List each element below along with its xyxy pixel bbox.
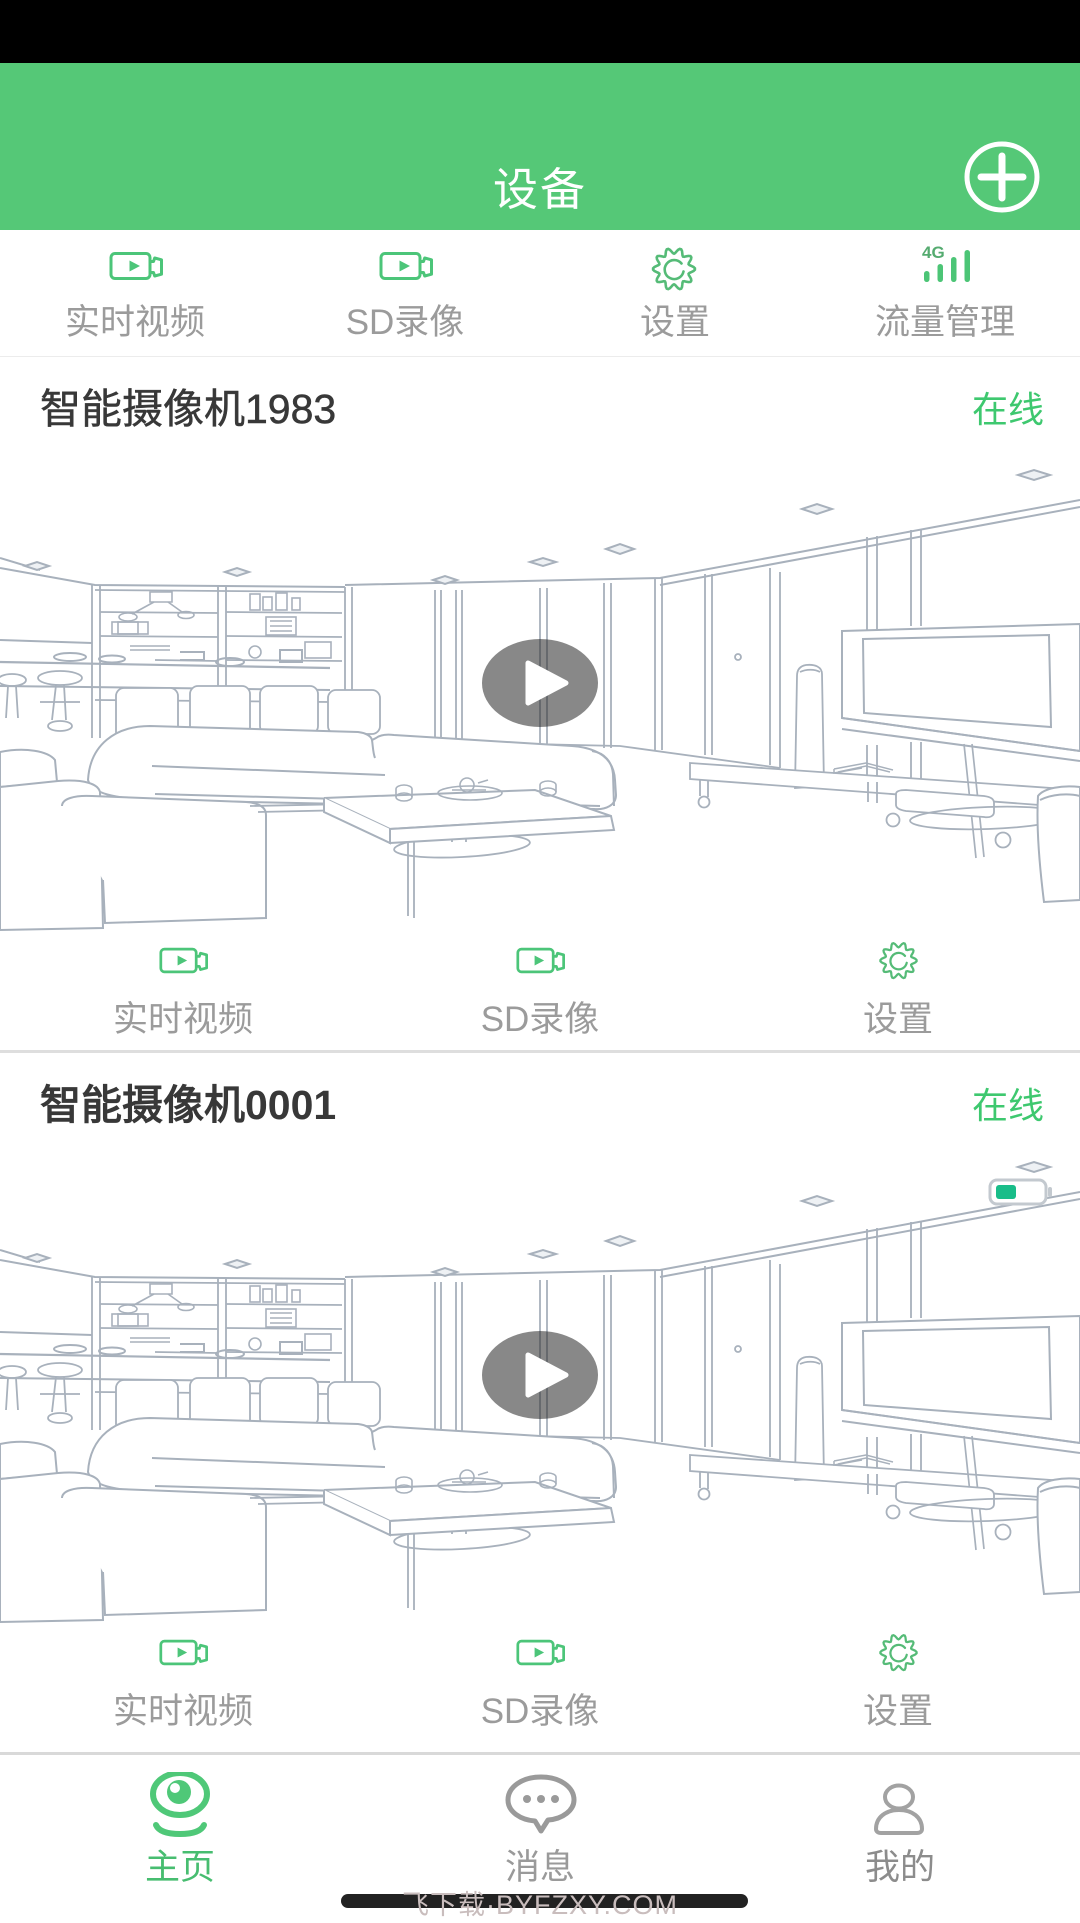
svg-text:4G: 4G [922,243,945,262]
